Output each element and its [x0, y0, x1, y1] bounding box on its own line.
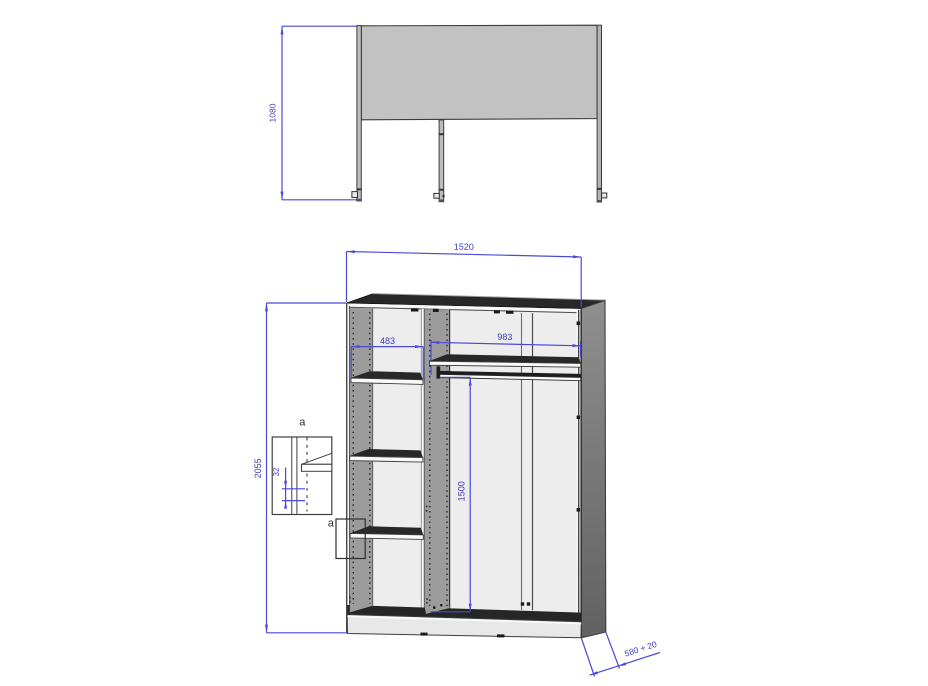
svg-text:a: a — [328, 518, 335, 530]
svg-text:1520: 1520 — [454, 242, 474, 252]
svg-text:580 + 20: 580 + 20 — [623, 639, 658, 659]
svg-text:483: 483 — [380, 336, 395, 346]
svg-text:1080: 1080 — [268, 103, 278, 122]
svg-text:2055: 2055 — [253, 458, 263, 478]
svg-text:a: a — [299, 417, 306, 429]
svg-text:1500: 1500 — [457, 481, 467, 501]
svg-text:983: 983 — [497, 332, 512, 342]
svg-text:32: 32 — [272, 467, 281, 476]
